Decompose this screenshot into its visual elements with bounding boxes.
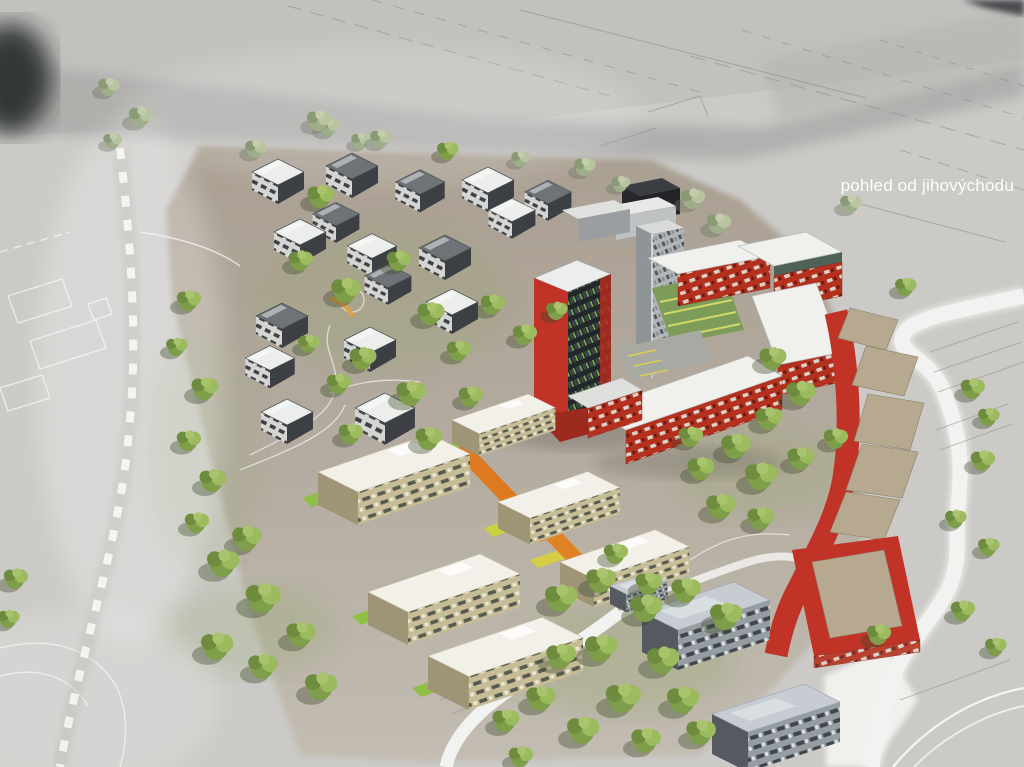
view-caption: pohled od jihovýchodu xyxy=(841,176,1014,196)
scene-canvas xyxy=(0,0,1024,767)
architectural-rendering: pohled od jihovýchodu xyxy=(0,0,1024,767)
